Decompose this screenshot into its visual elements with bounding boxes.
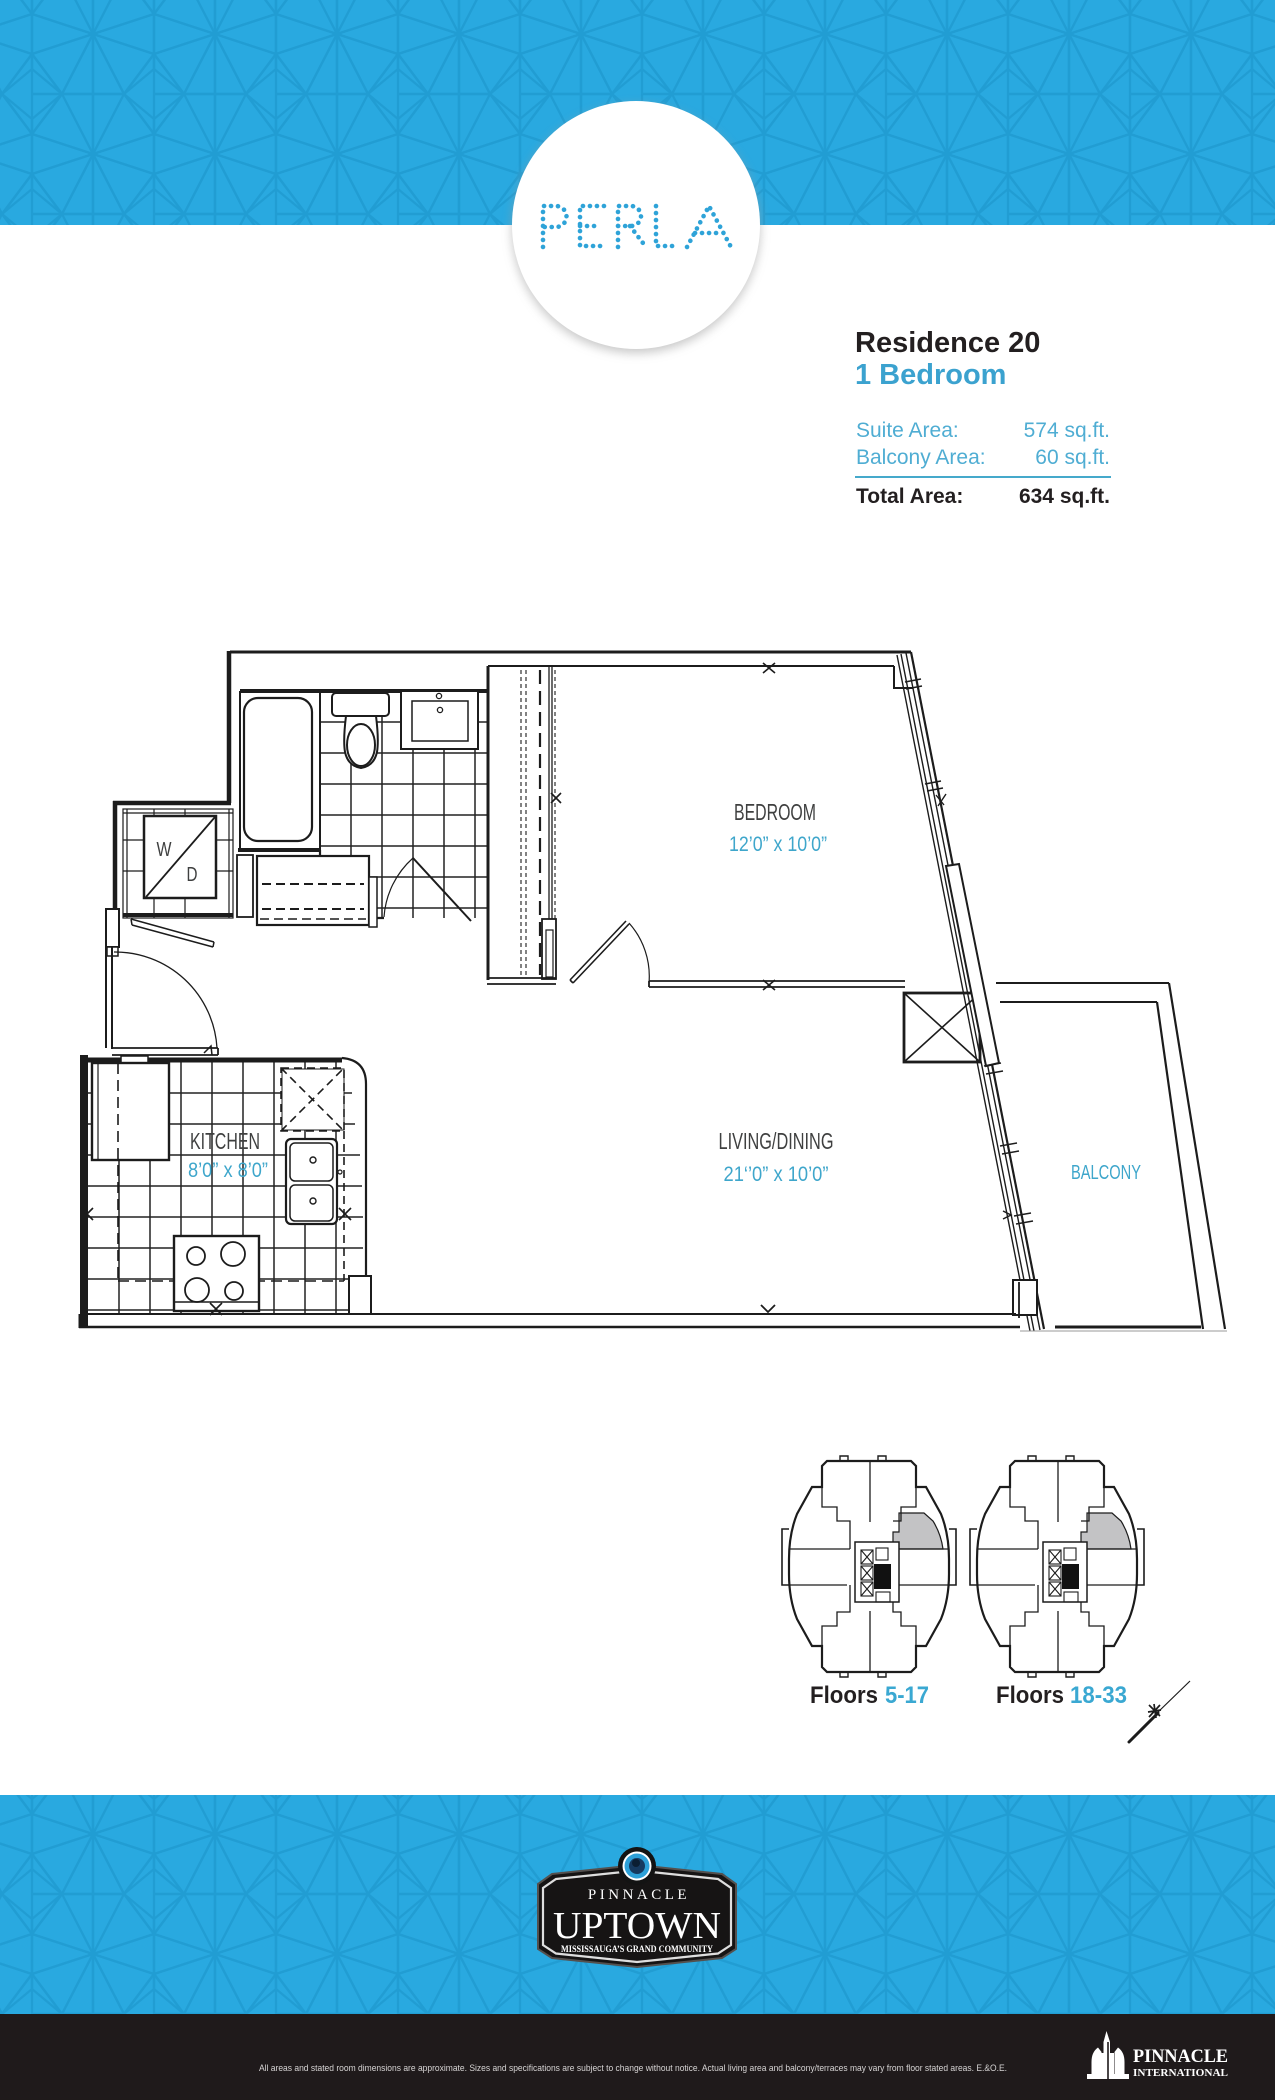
svg-text:Balcony Area:: Balcony Area: (856, 446, 986, 469)
svg-text:BALCONY: BALCONY (1071, 1162, 1141, 1184)
svg-text:18-33: 18-33 (1070, 1682, 1127, 1709)
svg-text:8’0” x 8’0”: 8’0” x 8’0” (188, 1159, 268, 1182)
svg-text:Residence 20: Residence 20 (855, 327, 1040, 359)
svg-text:1 Bedroom: 1 Bedroom (855, 359, 1006, 391)
svg-text:MISSISSAUGA’S GRAND COMMUNITY: MISSISSAUGA’S GRAND COMMUNITY (561, 1944, 713, 1954)
svg-text:60 sq.ft.: 60 sq.ft. (1035, 446, 1110, 469)
svg-text:BEDROOM: BEDROOM (734, 799, 816, 825)
svg-text:Floors: Floors (996, 1682, 1064, 1709)
svg-text:INTERNATIONAL: INTERNATIONAL (1133, 2067, 1228, 2079)
svg-text:UPTOWN: UPTOWN (553, 1905, 721, 1947)
svg-text:All areas and stated room dime: All areas and stated room dimensions are… (259, 2063, 1007, 2073)
svg-text:5-17: 5-17 (885, 1682, 929, 1709)
svg-text:W: W (157, 839, 172, 861)
svg-text:KITCHEN: KITCHEN (190, 1128, 260, 1154)
svg-text:PINNACLE: PINNACLE (1133, 2046, 1228, 2067)
svg-text:Total Area:: Total Area: (856, 485, 963, 508)
svg-text:12’0” x 10’0”: 12’0” x 10’0” (729, 833, 827, 856)
svg-text:634 sq.ft.: 634 sq.ft. (1019, 485, 1110, 508)
svg-text:Floors: Floors (810, 1682, 878, 1709)
svg-text:PINNACLE: PINNACLE (588, 1887, 690, 1903)
svg-text:Suite Area:: Suite Area: (856, 419, 959, 442)
svg-text:21‘’0” x 10’0”: 21‘’0” x 10’0” (724, 1163, 829, 1186)
svg-text:574 sq.ft.: 574 sq.ft. (1024, 419, 1110, 442)
svg-text:D: D (187, 864, 198, 886)
svg-text:LIVING/DINING: LIVING/DINING (719, 1128, 834, 1154)
